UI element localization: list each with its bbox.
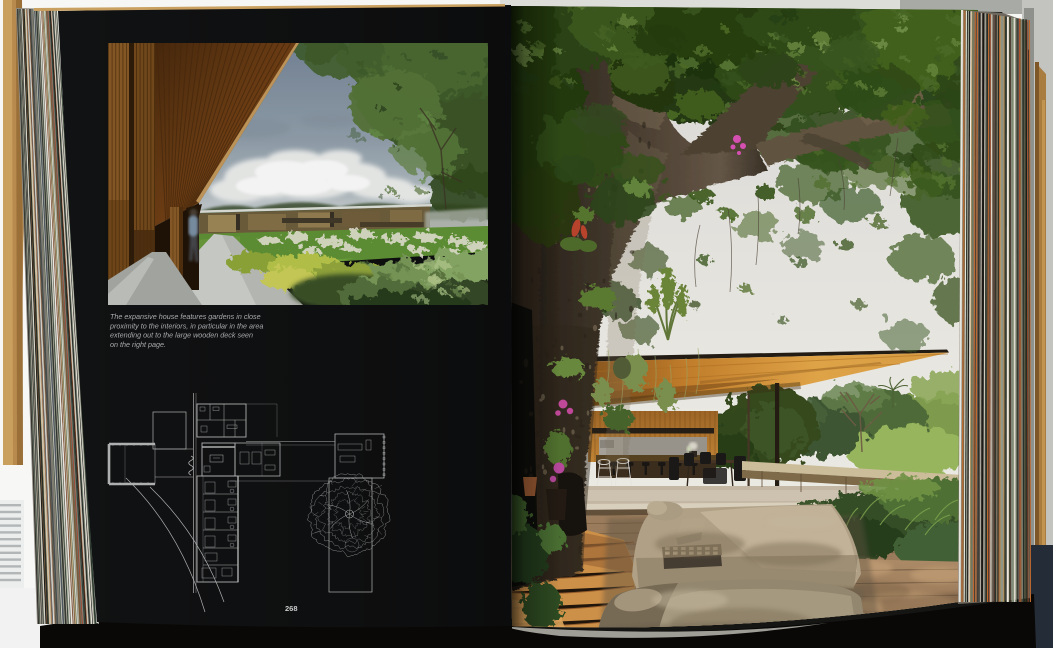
svg-text:268: 268	[285, 604, 298, 613]
